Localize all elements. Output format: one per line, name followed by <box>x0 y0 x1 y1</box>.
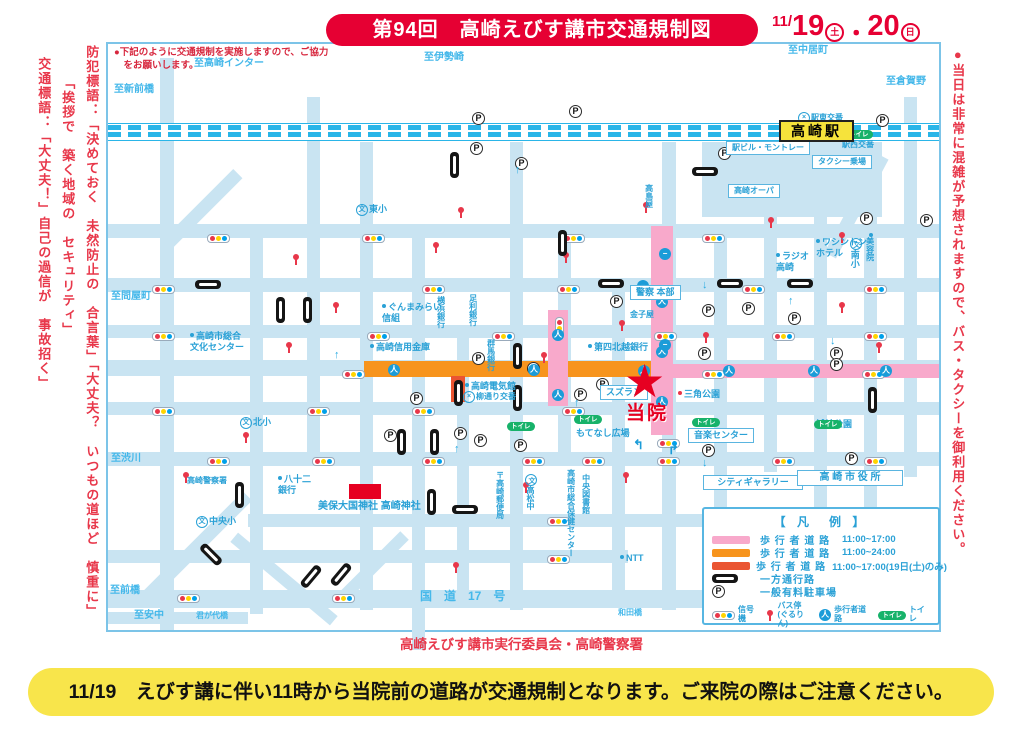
congestion-notice: ●当日は非常に混雑が予想されますので、バス・タクシーを御利用ください。 <box>950 47 964 667</box>
bus-stop-icon <box>457 207 465 218</box>
one-way-bar-icon <box>276 297 285 323</box>
traffic-signal-icon <box>557 285 580 294</box>
bus-stop-icon <box>875 342 883 353</box>
traffic-signal-icon <box>332 594 355 603</box>
map-label: もてなし広場 <box>576 428 630 439</box>
legend-label: 一般有料駐車場 <box>760 584 836 599</box>
traffic-signal-icon <box>152 285 175 294</box>
one-way-bar-icon <box>195 280 221 289</box>
clinic-label: 当院 <box>626 398 668 425</box>
one-way-bar-icon <box>450 152 459 178</box>
legend-rows: 歩 行 者 道 路11:00~17:00歩 行 者 道 路11:00~24:00… <box>712 533 930 598</box>
legend-item-label: トイレ <box>909 606 930 624</box>
map-label: ぐんまみらい 信組 <box>382 302 442 324</box>
one-way-bar-icon <box>717 279 743 288</box>
map-label: 至倉賀野 <box>886 76 926 88</box>
map-label: 至問屋町 <box>111 291 151 303</box>
legend-item-label: 信号機 <box>738 606 759 624</box>
traffic-signal-icon <box>702 370 725 379</box>
traffic-signal-icon <box>422 285 445 294</box>
legend-swatch-verm <box>712 562 750 570</box>
no-entry-icon: − <box>659 339 671 351</box>
parking-icon: P <box>702 444 715 457</box>
map-label: 文北小 <box>240 417 271 429</box>
parking-icon: P <box>610 295 623 308</box>
map-label: 至安中 <box>134 610 164 622</box>
traffic-signal-icon <box>864 285 887 294</box>
one-way-bar-icon <box>454 380 463 406</box>
parking-icon: P <box>514 439 527 452</box>
map-label: NTT <box>620 553 644 564</box>
date-month: 11/ <box>772 13 792 30</box>
traffic-signal-icon <box>702 234 725 243</box>
map-label: 音楽センター <box>688 428 754 443</box>
traffic-signal-icon <box>177 594 200 603</box>
traffic-signal-icon <box>312 457 335 466</box>
traffic-signal-icon <box>772 332 795 341</box>
pedestrian-icon: 人 <box>552 389 564 401</box>
parking-icon: P <box>876 114 889 127</box>
curve-arrow-icon: ↱ <box>668 443 679 456</box>
parking-icon: P <box>788 312 801 325</box>
map-dot-icon <box>620 555 624 559</box>
parking-icon: P <box>920 214 933 227</box>
greeting-slogan: 「挨拶で 築く地域の セキュリティ」 <box>60 76 74 636</box>
date-day1: 19 <box>792 10 824 42</box>
legend-item-toilet: トイレトイレ <box>878 606 930 624</box>
no-entry-icon: − <box>659 248 671 260</box>
map-label: 高崎信用金庫 <box>370 342 430 353</box>
legend-item-signal: 信号機 <box>712 606 759 624</box>
map-label: 文高松中 <box>525 474 538 510</box>
map-label: 横浜銀行 <box>436 296 446 328</box>
direction-arrow-icon: ↓ <box>702 458 708 469</box>
parking-icon: P <box>569 105 582 118</box>
pedestrian-icon: 人 <box>388 364 400 376</box>
parking-icon: P <box>830 358 843 371</box>
traffic-signal-icon <box>864 332 887 341</box>
direction-arrow-icon: ↑ <box>574 398 580 409</box>
parking-icon: P <box>384 429 397 442</box>
school-icon: 文 <box>240 417 252 429</box>
parking-icon: P <box>454 427 467 440</box>
one-way-bar-icon <box>427 489 436 515</box>
legend-title: 【 凡 例 】 <box>712 513 930 530</box>
legend-item-walker: 人歩行者道路 <box>819 606 871 624</box>
date-separator: ・ <box>845 16 867 48</box>
map-label: 警察 本部 <box>630 285 681 300</box>
map-dot-icon <box>370 344 374 348</box>
legend-item-label: バス停 (ぐるりん) <box>777 602 812 628</box>
parking-icon: P <box>860 212 873 225</box>
map-dot-icon <box>465 383 469 387</box>
road <box>904 97 917 477</box>
parking-icon: P <box>712 585 725 598</box>
pedestrian-icon: 人 <box>723 365 735 377</box>
road <box>160 58 174 630</box>
one-way-bar-icon <box>397 429 406 455</box>
toilet-badge: トイレ <box>692 418 720 427</box>
signal-icon <box>712 611 735 620</box>
map-label: 美保大国神社 高崎神社 <box>318 501 421 513</box>
event-dates: 11/ 19 土 ・ 20 日 <box>772 10 921 48</box>
traffic-signal-icon <box>362 234 385 243</box>
bus-stop-icon <box>452 562 460 573</box>
map-dot-icon <box>776 253 780 257</box>
map-canvas: ★当院●下記のように交通規制を実施しますので、ご協力 をお願いします。 【 凡 … <box>106 42 941 632</box>
direction-arrow-icon: ↑ <box>515 165 521 176</box>
one-way-bar-icon <box>452 505 478 514</box>
map-dot-icon <box>869 233 873 237</box>
one-way-bar-icon <box>692 167 718 176</box>
traffic-signal-icon <box>864 457 887 466</box>
bus-stop-icon <box>285 342 293 353</box>
parking-icon: P <box>410 392 423 405</box>
crime-prevention-slogan: 防犯標語：「決めておく 未然防止の 合言葉」「大丈夫？ いつもの道ほど 慎重に」 <box>84 45 98 685</box>
one-way-bar-icon <box>430 429 439 455</box>
one-way-bar-icon <box>558 230 567 256</box>
bus-stop-icon <box>292 254 300 265</box>
toilet-badge: トイレ <box>507 422 535 431</box>
school-icon: 文 <box>196 516 208 528</box>
traffic-signal-icon <box>152 332 175 341</box>
traffic-signal-icon <box>367 332 390 341</box>
map-label: 文中央小 <box>196 516 236 528</box>
traffic-signal-icon <box>152 407 175 416</box>
traffic-signal-icon <box>307 407 330 416</box>
bus-stop-icon <box>622 472 630 483</box>
legend-box: 【 凡 例 】 歩 行 者 道 路11:00~17:00歩 行 者 道 路11:… <box>702 507 940 625</box>
direction-arrow-icon: ↓ <box>702 280 708 291</box>
map-label: 高崎駅 <box>779 120 854 142</box>
one-way-bar-icon <box>868 387 877 413</box>
parking-icon: P <box>472 352 485 365</box>
map-label: 高崎オーパ <box>728 184 780 198</box>
one-way-bar-icon <box>513 343 522 369</box>
parking-icon: P <box>845 452 858 465</box>
title-banner: 第94回 高崎えびす講市交通規制図 <box>326 14 758 46</box>
bus-stop-icon <box>618 320 626 331</box>
poster-page: 第94回 高崎えびす講市交通規制図 11/ 19 土 ・ 20 日 防犯標語：「… <box>0 0 1024 741</box>
traffic-signal-icon <box>412 407 435 416</box>
map-dot-icon <box>588 344 592 348</box>
toilet-icon: トイレ <box>878 611 906 620</box>
saturday-mark-icon: 土 <box>825 23 844 42</box>
pedestrian-icon: 人 <box>880 365 892 377</box>
map-dot-icon <box>190 333 194 337</box>
legend-item-busstop: バス停 (ぐるりん) <box>766 602 812 628</box>
map-label: ラジオ 高崎 <box>776 251 809 273</box>
map-dot-icon <box>382 304 386 308</box>
shrine-marker <box>349 484 381 499</box>
map-dot-icon <box>678 391 682 395</box>
pedestrian-road-orange <box>364 361 652 377</box>
map-dot-icon <box>278 476 282 480</box>
map-label: 文東小 <box>356 204 387 216</box>
map-label: 〒高崎郵便局 <box>495 471 505 519</box>
parking-icon: P <box>698 347 711 360</box>
map-dot-icon <box>816 239 820 243</box>
one-way-bar-icon <box>303 297 312 323</box>
pedestrian-icon: 人 <box>808 365 820 377</box>
legend-time: 11:00~17:00(19日(土)のみ) <box>832 559 947 573</box>
road <box>307 97 320 452</box>
map-label: 中央図書館 <box>581 474 591 514</box>
map-label: 高崎市総合 文化センター <box>190 331 244 353</box>
traffic-slogan: 交通標語：「大丈夫！」自己の過信が 事故招く」 <box>36 57 50 657</box>
parking-icon: P <box>742 302 755 315</box>
bus-stop-icon <box>838 302 846 313</box>
bus-stop-icon <box>242 432 250 443</box>
traffic-signal-icon <box>582 457 605 466</box>
bus-stop-icon <box>702 332 710 343</box>
map-label: 高崎市総合保健センター <box>566 469 576 557</box>
traffic-signal-icon <box>522 457 545 466</box>
map-label: 群馬銀行 <box>486 339 496 371</box>
legend-row: P一般有料駐車場 <box>712 585 930 598</box>
map-label: 君が代橋 <box>196 611 228 621</box>
map-label: 美容院 <box>865 233 875 261</box>
date-day2: 20 <box>867 10 899 42</box>
toilet-badge: トイレ <box>814 420 842 429</box>
bus-stop-icon <box>767 217 775 228</box>
map-label: 高崎警察署 <box>187 476 227 486</box>
toilet-badge: トイレ <box>574 415 602 424</box>
map-label: 高島屋 <box>644 184 654 208</box>
traffic-signal-icon <box>207 234 230 243</box>
one-way-bar-icon <box>712 574 738 583</box>
bus-stop-icon <box>540 352 548 363</box>
sunday-mark-icon: 日 <box>901 23 920 42</box>
parking-icon: P <box>472 112 485 125</box>
direction-arrow-icon: ↑ <box>788 296 794 307</box>
legend-swatch-orange <box>712 549 750 557</box>
map-label: 第四北越銀行 <box>588 342 648 353</box>
map-label: ワシントン ホテル <box>816 237 867 259</box>
legend-time: 11:00~24:00 <box>842 547 930 558</box>
traffic-signal-icon <box>772 457 795 466</box>
traffic-signal-icon <box>422 457 445 466</box>
legend-item-label: 歩行者道路 <box>834 606 871 624</box>
map-label: 足利銀行 <box>468 294 478 326</box>
busstop-icon <box>766 610 774 621</box>
parking-icon: P <box>474 434 487 447</box>
curve-arrow-icon: ↰ <box>633 438 644 451</box>
map-label: ×柳通り交番 <box>463 391 516 403</box>
map-label: 至新前橋 <box>114 84 154 96</box>
map-note: ●下記のように交通規制を実施しますので、ご協力 をお願いします。 <box>114 47 328 73</box>
traffic-signal-icon <box>657 457 680 466</box>
direction-arrow-icon: ↑ <box>334 350 340 361</box>
parking-icon: P <box>470 142 483 155</box>
one-way-bar-icon <box>299 564 323 590</box>
one-way-bar-icon <box>598 279 624 288</box>
map-label: 至前橋 <box>110 585 140 597</box>
legend-time: 11:00~17:00 <box>842 534 930 545</box>
map-label: 和田橋 <box>618 608 642 618</box>
map-label: タクシー乗場 <box>812 155 872 169</box>
map-label: 国 道 17 号 <box>420 589 505 603</box>
organizer-credit: 高崎えびす講市実行委員会・高崎警察署 <box>106 633 937 653</box>
school-icon: 文 <box>356 204 368 216</box>
walker-icon: 人 <box>819 609 831 621</box>
direction-arrow-icon: ↑ <box>454 444 460 455</box>
legend-bottom-row: 信号機バス停 (ぐるりん)人歩行者道路トイレトイレ <box>712 602 930 628</box>
map-label: 高 崎 市 役 所 <box>797 470 903 486</box>
traffic-signal-icon <box>207 457 230 466</box>
map-label: シティギャラリー <box>703 475 803 490</box>
legend-swatch-pink <box>712 536 750 544</box>
clinic-notice-banner: 11/19 えびす講に伴い11時から当院前の道路が交通規制となります。ご来院の際… <box>28 668 994 716</box>
school-icon: 文 <box>525 474 537 486</box>
traffic-signal-icon <box>342 370 365 379</box>
map-label: 八十二 銀行 <box>278 474 311 496</box>
traffic-signal-icon <box>742 285 765 294</box>
bus-stop-icon <box>432 242 440 253</box>
one-way-bar-icon <box>787 279 813 288</box>
pedestrian-icon: 人 <box>528 364 540 376</box>
koban-icon: × <box>463 391 475 403</box>
map-label: 金子屋 <box>630 310 654 320</box>
parking-icon: P <box>702 304 715 317</box>
one-way-bar-icon <box>235 482 244 508</box>
map-label: 至伊勢崎 <box>424 52 464 64</box>
bus-stop-icon <box>332 302 340 313</box>
direction-arrow-icon: ↓ <box>830 336 836 347</box>
map-label: 駅ビル・モントレー <box>726 141 810 155</box>
pedestrian-icon: 人 <box>552 329 564 341</box>
map-label: 至渋川 <box>111 453 141 465</box>
map-label: 三角公園 <box>678 389 720 400</box>
